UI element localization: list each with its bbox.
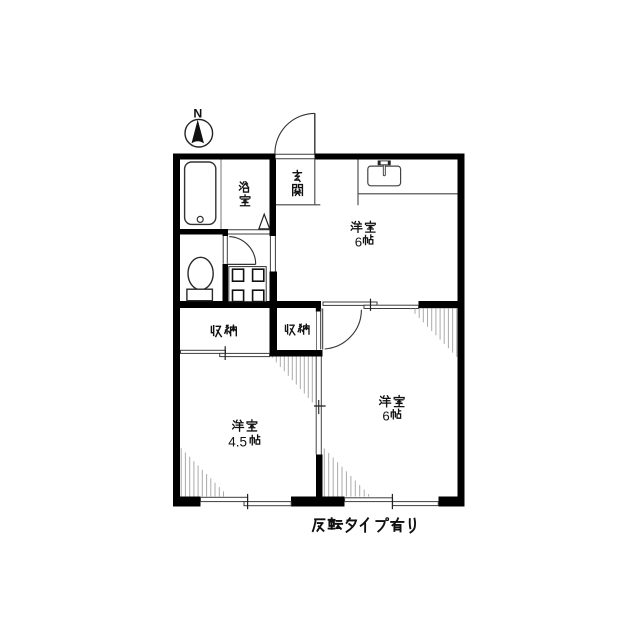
svg-text:6: 6 [382,409,389,424]
svg-text:6: 6 [355,234,362,249]
svg-text:4.5: 4.5 [228,434,247,449]
svg-text:N: N [193,106,202,120]
